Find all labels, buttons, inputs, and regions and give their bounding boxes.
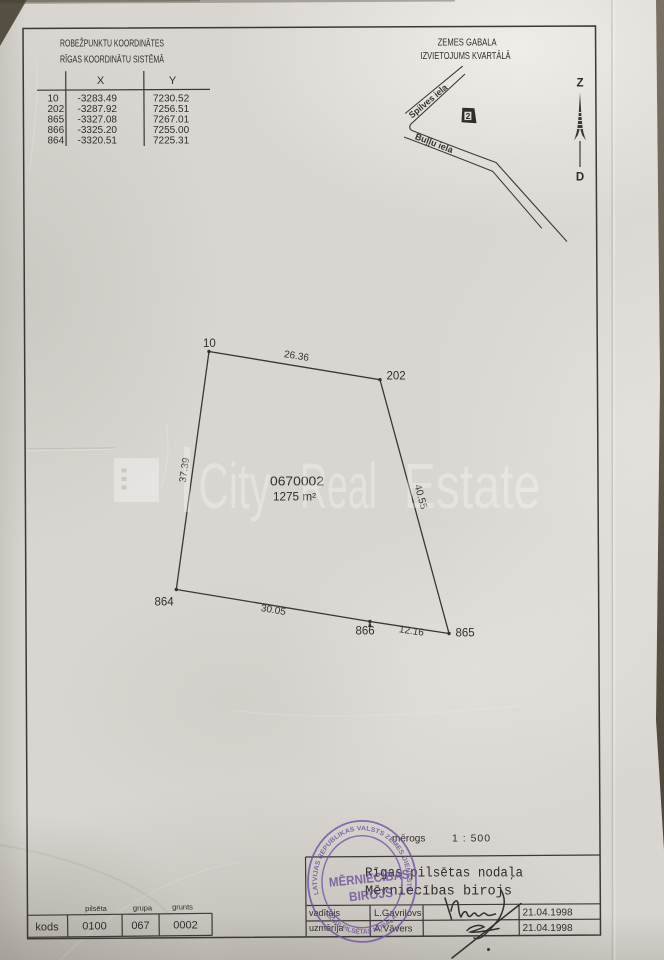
svg-text:7230.52: 7230.52 [153, 94, 190, 105]
svg-text:26.36: 26.36 [283, 349, 310, 364]
svg-text:Real: Real [300, 450, 377, 522]
svg-text:202: 202 [387, 371, 406, 383]
svg-text:864: 864 [48, 135, 65, 146]
svg-text:RĪGAS KOORDINĀTU SISTĒMĀ: RĪGAS KOORDINĀTU SISTĒMĀ [60, 54, 164, 66]
svg-text:Estate: Estate [404, 450, 541, 522]
svg-text:L.Gavrilovs: L.Gavrilovs [374, 908, 422, 919]
svg-text:D: D [576, 172, 584, 184]
svg-text:Z: Z [576, 78, 583, 90]
svg-text:864: 864 [155, 597, 175, 609]
svg-text:10: 10 [48, 94, 60, 105]
svg-text:2: 2 [466, 111, 471, 121]
svg-text:-3287.92: -3287.92 [78, 104, 118, 115]
svg-text:866: 866 [48, 125, 65, 136]
svg-text:X: X [97, 75, 105, 87]
svg-text:-3283.49: -3283.49 [78, 94, 118, 105]
svg-text:-3325.20: -3325.20 [78, 125, 118, 136]
svg-text:Spilves iela: Spilves iela [407, 82, 450, 120]
svg-text:ROBEŽPUNKTU KOORDINĀTES: ROBEŽPUNKTU KOORDINĀTES [60, 37, 164, 50]
svg-text:21.04.1998: 21.04.1998 [523, 908, 573, 919]
svg-text:City: City [199, 450, 271, 522]
svg-text:ZEMES GABALA: ZEMES GABALA [438, 37, 497, 49]
svg-text:0002: 0002 [173, 920, 197, 932]
svg-text:865: 865 [456, 628, 475, 640]
svg-text:pilsēta: pilsēta [85, 904, 108, 913]
svg-text:21.04.1998: 21.04.1998 [523, 923, 573, 934]
svg-text:7255.00: 7255.00 [153, 125, 190, 136]
svg-text:Y: Y [169, 75, 177, 87]
svg-text:0100: 0100 [82, 921, 106, 933]
svg-text:865: 865 [48, 115, 65, 126]
svg-text:7267.01: 7267.01 [153, 115, 190, 126]
svg-text:1 : 500: 1 : 500 [452, 833, 491, 845]
svg-text:grunts: grunts [172, 903, 193, 912]
svg-text:7225.31: 7225.31 [153, 135, 190, 146]
svg-text:30.05: 30.05 [260, 603, 287, 618]
svg-text:kods: kods [35, 922, 59, 934]
svg-text:IZVIETOJUMS KVARTĀLĀ: IZVIETOJUMS KVARTĀLĀ [421, 50, 511, 62]
svg-text:7256.51: 7256.51 [153, 104, 190, 115]
svg-text:-3320.51: -3320.51 [78, 135, 118, 146]
svg-text:BIROJS: BIROJS [348, 885, 394, 905]
svg-text:12.16: 12.16 [398, 624, 425, 639]
svg-text:202: 202 [48, 104, 65, 115]
svg-text:866: 866 [356, 626, 375, 638]
svg-text:067: 067 [131, 920, 149, 932]
svg-text:grupa: grupa [133, 904, 153, 913]
svg-text:-3327.08: -3327.08 [78, 115, 118, 126]
svg-text:10: 10 [203, 338, 216, 350]
